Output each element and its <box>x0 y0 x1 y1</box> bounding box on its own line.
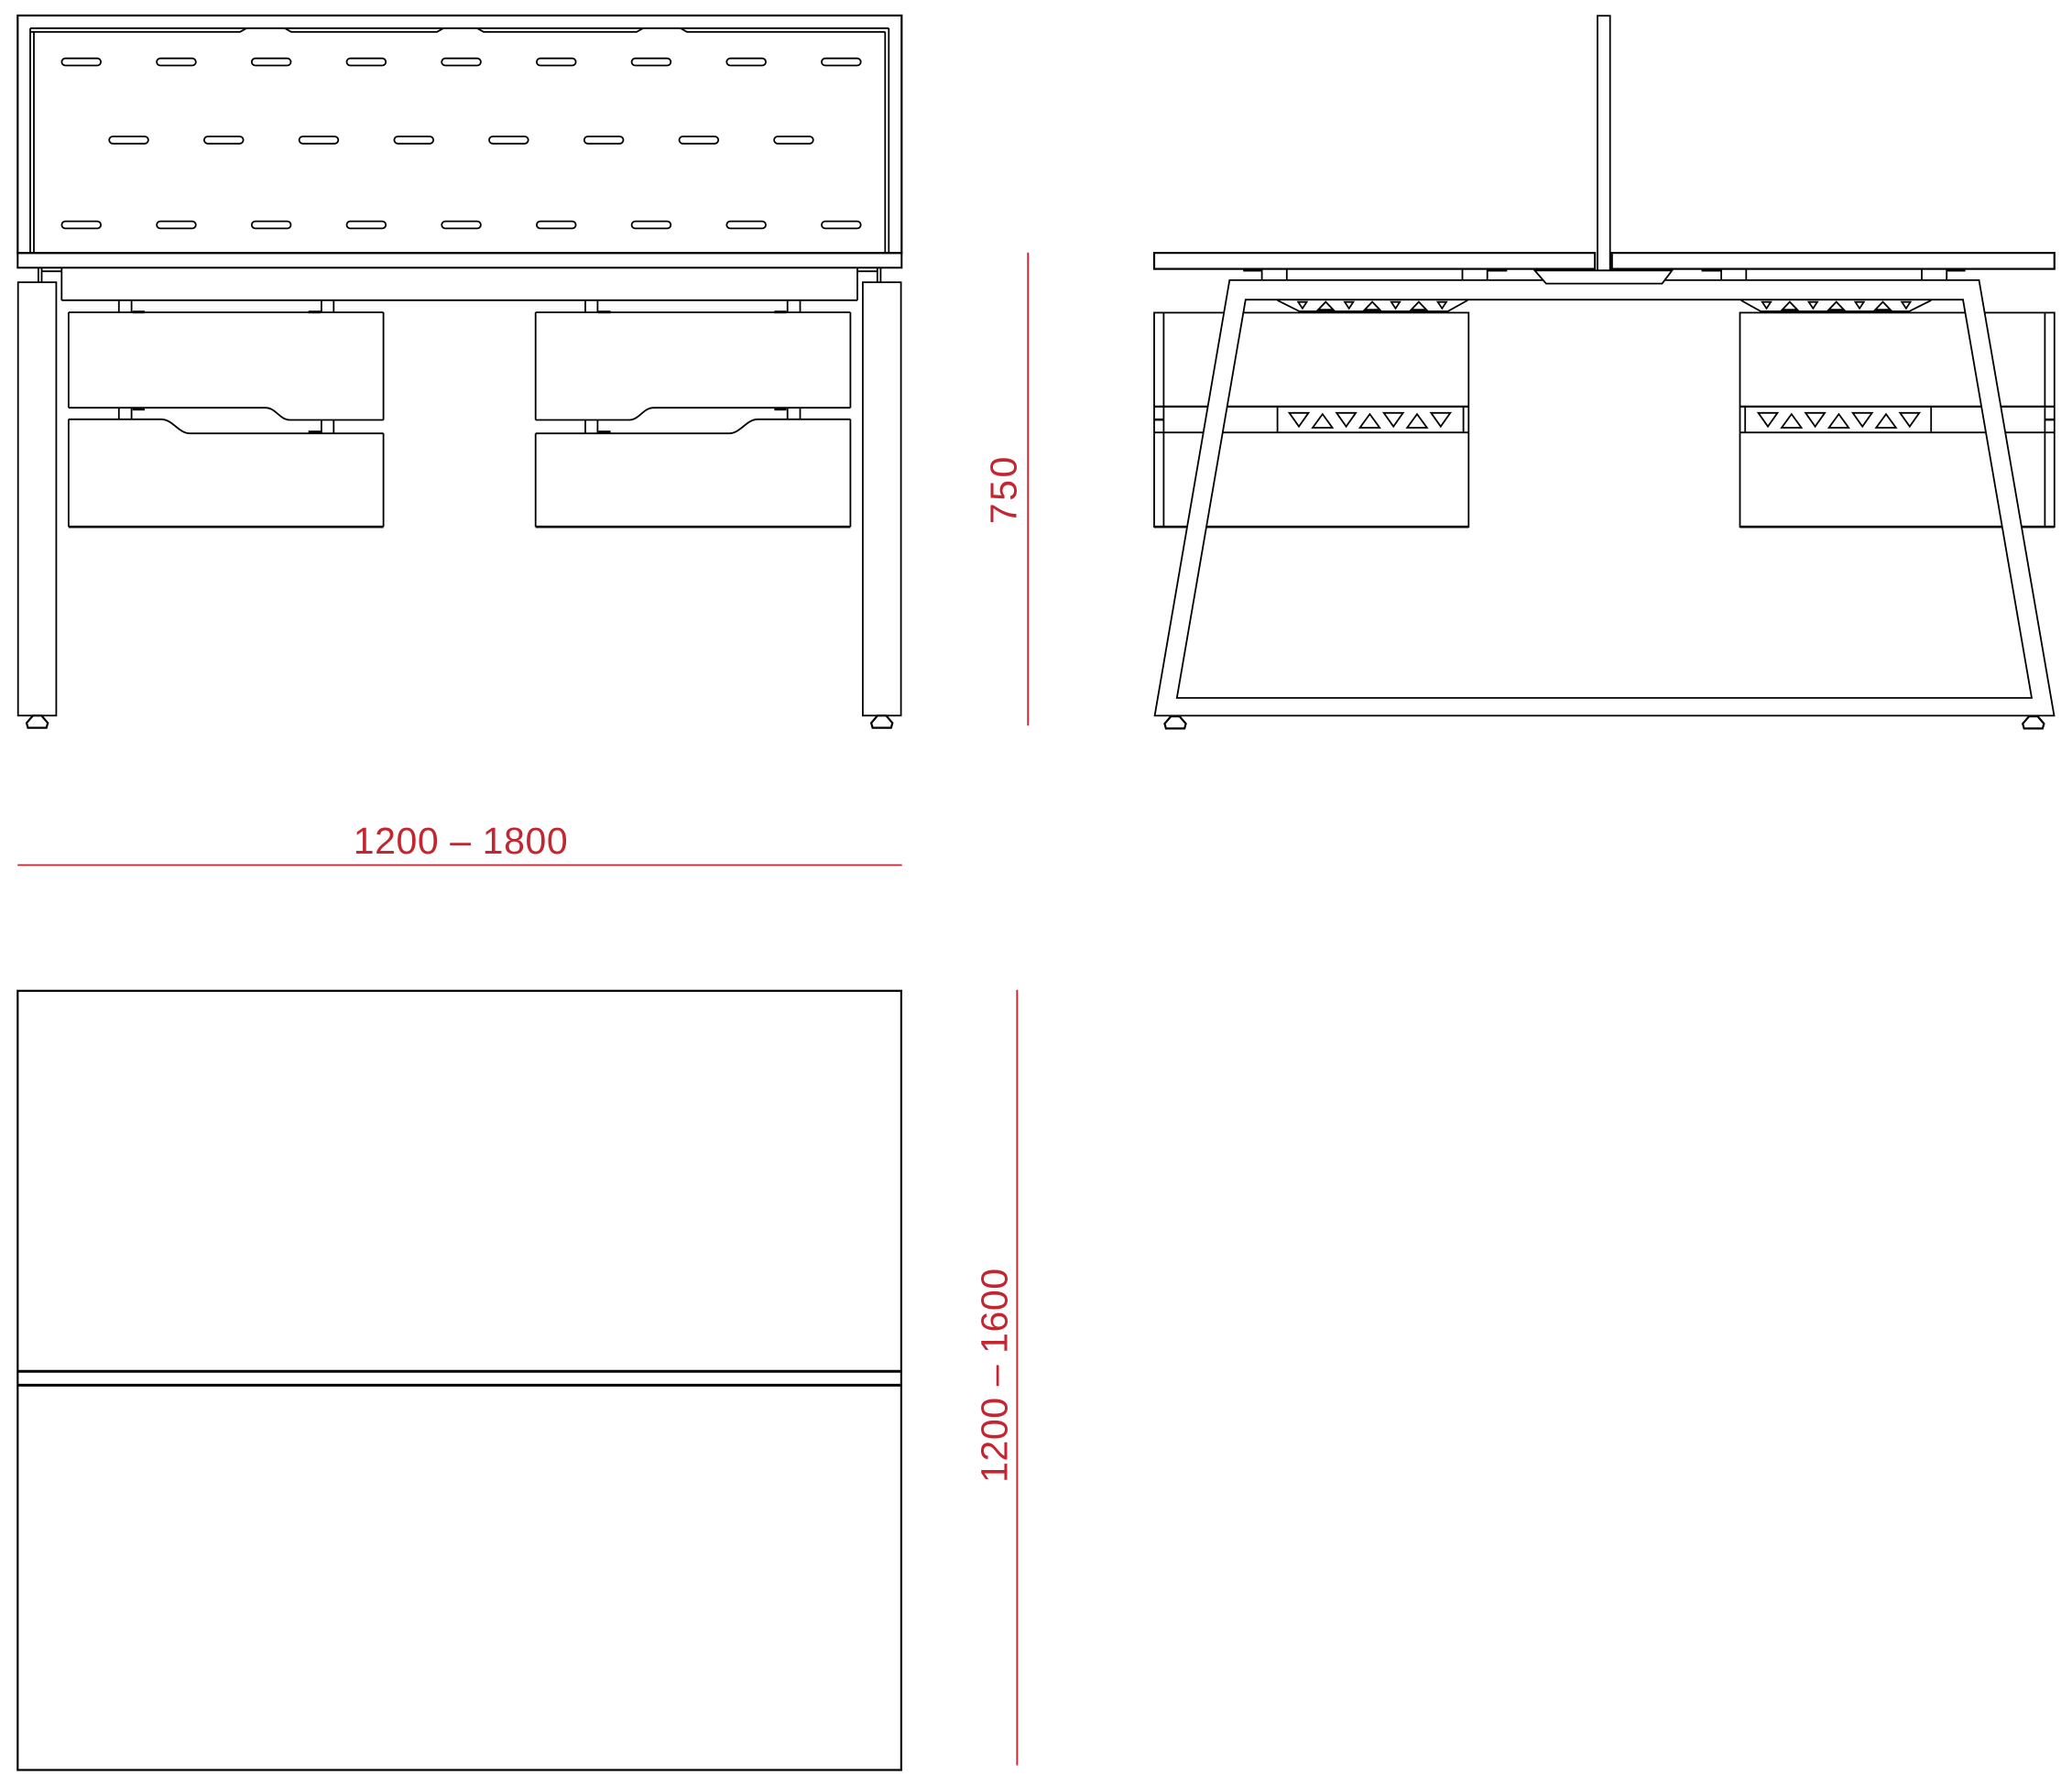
svg-text:1200 – 1800: 1200 – 1800 <box>354 820 569 862</box>
svg-text:750: 750 <box>983 454 1025 524</box>
svg-text:1200 – 1600: 1200 – 1600 <box>973 1268 1015 1483</box>
